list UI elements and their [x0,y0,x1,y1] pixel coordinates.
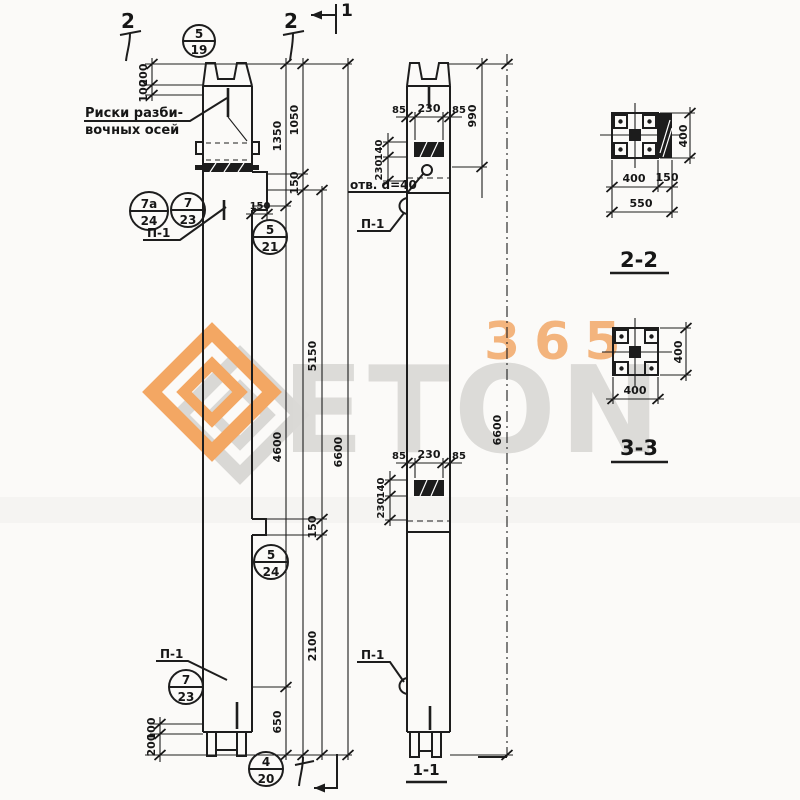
dim-1050: 1050 [288,104,301,135]
lifting-loops [400,198,408,694]
dim-1350: 1350 [271,120,284,151]
ref-c6-bottom: 23 [178,690,195,704]
dim-85-top-left: 85 [392,105,406,116]
axis-note-line2: вочных осей [85,123,179,138]
embed-plate-lug-left [195,165,203,170]
ref-c1-bottom: 19 [191,43,208,57]
lifting-hole [422,165,432,175]
right-column-elevation [400,63,451,757]
ref-c4-bottom: 21 [262,240,279,254]
s22-dim-400h: 400 [677,124,690,147]
ref-c6-top: 7 [182,673,190,687]
s22-dim-550: 550 [630,197,653,210]
left-column-hidden-lines [206,143,252,160]
loop-label-3: П-1 [160,647,183,661]
dim-5150: 5150 [306,340,319,371]
left-column-side-hooks [196,142,259,154]
cut-marker-2-mid: 2 [284,9,298,33]
dim-85-mid-left: 85 [392,451,406,462]
dim-2100: 2100 [306,630,319,661]
ref-c2-top: 7а [141,197,157,211]
section-3-3-core [629,346,641,358]
right-column-crown [407,63,450,86]
dim-85-top-right: 85 [452,105,466,116]
dim-4600: 4600 [271,431,284,462]
ref-c3-bottom: 23 [180,213,197,227]
left-column-axis-marks [224,88,237,729]
s22-dim-150w: 150 [656,171,679,184]
section-2-2-core [629,129,641,141]
embed-plate-lug-right [252,165,259,170]
ref-c5-top: 5 [267,548,275,562]
dim-230v-mid: 230 [376,498,387,519]
s33-dim-400h: 400 [672,340,685,363]
right-column-embed-plate-top [414,142,444,157]
dim-6600-right: 6600 [491,414,504,445]
dim-100-top: 100 [137,79,150,102]
right-column-foot [410,732,441,757]
dim-650: 650 [271,710,284,733]
s33-dim-400w: 400 [624,384,647,397]
dim-6600-left: 6600 [332,436,345,467]
dim-85-mid-right: 85 [452,451,466,462]
dim-200-bottom: 200 [145,733,158,756]
loop-label-2: П-1 [361,217,384,231]
drawing-sheet: ETON 365 [0,0,800,800]
hole-note: отв. d=40 [350,178,417,192]
dim-150-corbel2: 150 [306,515,319,538]
ref-c7-top: 4 [262,755,270,769]
dim-140-top: 140 [374,140,385,161]
cut-arrow-bottom [314,784,325,793]
dim-230-mid: 230 [418,448,441,461]
ref-c1-top: 5 [195,27,203,41]
dim-990: 990 [466,104,479,127]
axis-note-line1: Риски разби- [85,106,183,121]
left-column-crown [203,63,252,86]
s11-title: 1-1 [412,761,439,779]
loop-label-1: П-1 [147,226,170,240]
left-column-outline [203,86,267,732]
left-column-internal-line [228,117,247,141]
ref-c3-top: 7 [184,196,192,210]
loop-label-4: П-1 [361,648,384,662]
s33-title: 3-3 [620,436,658,460]
s22-title: 2-2 [620,248,658,272]
dim-150: 150 [288,171,301,194]
right-column-axis-marks [429,86,430,730]
ref-c4-top: 5 [266,223,274,237]
dim-140-mid: 140 [376,478,387,499]
dim-230-top: 230 [418,102,441,115]
left-column-elevation [195,63,267,756]
right-column-embed-plate-mid [414,480,444,496]
cut-marker-2-left: 2 [121,9,135,33]
ref-c5-bottom: 24 [263,565,280,579]
cut-arrow-top [311,11,322,20]
ref-c2-bottom: 24 [141,214,158,228]
left-column-foot [207,732,246,756]
s22-dim-400w: 400 [623,172,646,185]
ref-c7-bottom: 20 [258,772,275,786]
cut-marker-1: 1 [341,1,353,21]
technical-drawing: 200 100 1350 1050 150 5150 4600 6600 150… [0,0,800,800]
dim-150-corbel1: 150 [250,201,271,212]
